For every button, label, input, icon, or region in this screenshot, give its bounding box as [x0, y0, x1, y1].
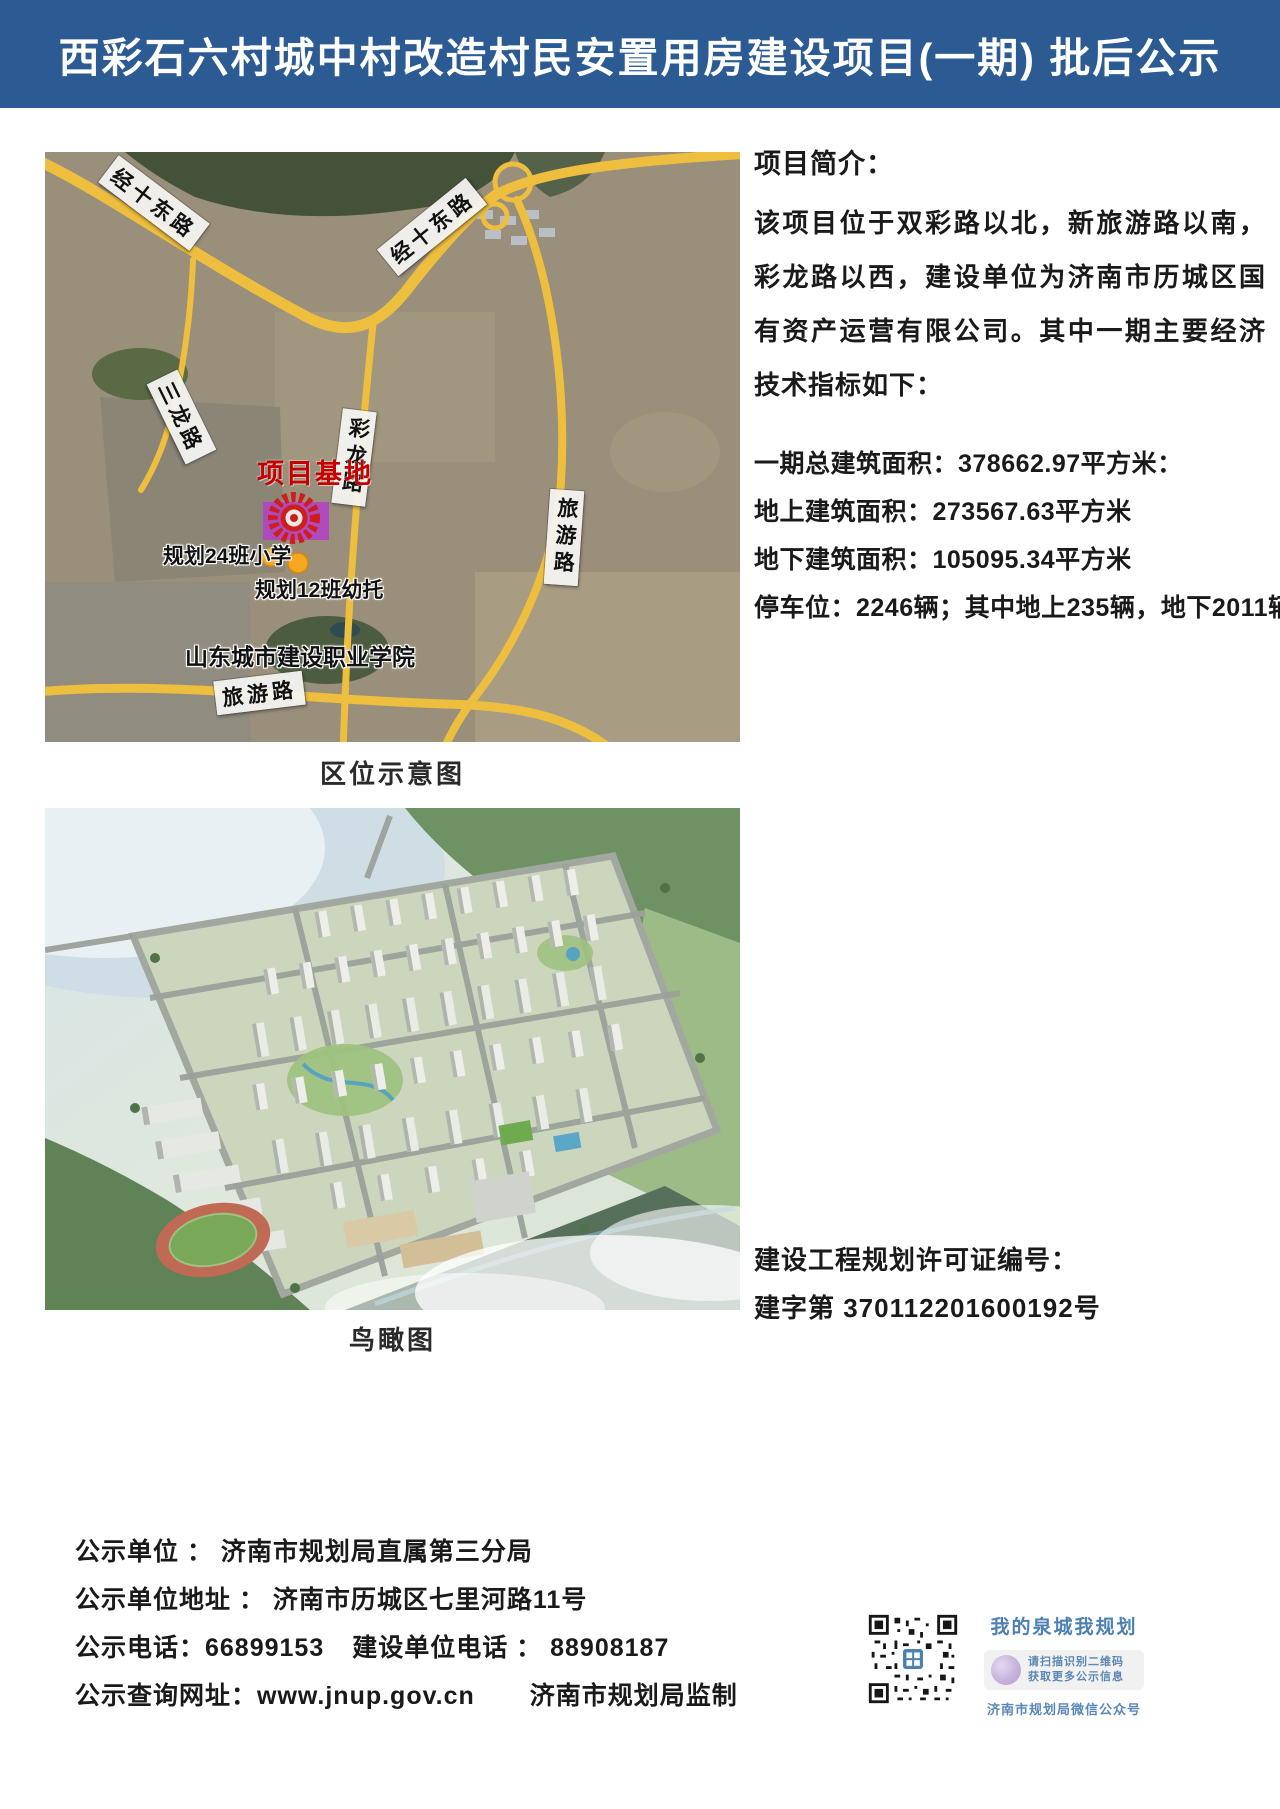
- website-label: 公示查询网址：www.jnup.gov.cn: [75, 1682, 475, 1710]
- birdseye-view: 鸟瞰图: [45, 808, 740, 1368]
- scan-tip-line2: 获取更多公示信息: [1028, 1670, 1124, 1685]
- site-label: 项目基地: [257, 452, 373, 491]
- qr-code: [866, 1612, 960, 1706]
- builder-phone-label: 建设单位电话 ： 88908187: [352, 1634, 669, 1662]
- permit-number-line: 建字第 370112201600192号: [754, 1284, 1101, 1332]
- location-map-caption: 区位示意图: [45, 754, 740, 791]
- scan-tip-box: 请扫描识别二维码 获取更多公示信息: [984, 1650, 1144, 1690]
- notice-page: 西彩石六村城中村改造村民安置用房建设项目(一期) 批后公示: [0, 0, 1280, 1809]
- indicator-above-ground-area: 地上建筑面积：273567.63平方米: [754, 488, 1266, 536]
- location-map: 经十东路 经十东路 三龙路 彩龙路 旅游路 旅游路 项目基地 规划24班小学 规…: [45, 152, 740, 797]
- footer-phone-line: 公示电话：66899153建设单位电话 ： 88908187: [75, 1624, 738, 1672]
- wechat-slogan: 我的泉城我规划: [984, 1612, 1144, 1639]
- intro-paragraph: 该项目位于双彩路以北，新旅游路以南，彩龙路以西，建设单位为济南市历城区国有资产运…: [754, 196, 1266, 412]
- indicator-parking: 停车位：2246辆；其中地上235辆，地下2011辆: [754, 584, 1266, 632]
- supervisor-label: 济南市规划局监制: [530, 1682, 738, 1710]
- indicator-underground-area: 地下建筑面积：105095.34平方米: [754, 536, 1266, 584]
- indicator-list: 一期总建筑面积：378662.97平方米： 地上建筑面积：273567.63平方…: [754, 440, 1266, 632]
- college-label: 山东城市建设职业学院: [185, 638, 415, 672]
- site-marker-icon: [263, 497, 329, 540]
- scan-tip-line1: 请扫描识别二维码: [1028, 1655, 1124, 1670]
- permit-info: 建设工程规划许可证编号： 建字第 370112201600192号: [754, 1236, 1101, 1332]
- phone-label: 公示电话：66899153: [75, 1634, 324, 1662]
- wechat-account: 济南市规划局微信公众号: [984, 1699, 1144, 1718]
- kindergarten-label: 规划12班幼托: [255, 574, 383, 604]
- footer-unit-line: 公示单位 ： 济南市规划局直属第三分局: [75, 1528, 738, 1576]
- footer-info: 公示单位 ： 济南市规划局直属第三分局 公示单位地址 ： 济南市历城区七里河路1…: [75, 1528, 738, 1720]
- school-label: 规划24班小学: [163, 540, 291, 570]
- indicator-total-area: 一期总建筑面积：378662.97平方米：: [754, 440, 1266, 488]
- birdseye-caption: 鸟瞰图: [45, 1320, 740, 1357]
- project-intro: 项目简介： 该项目位于双彩路以北，新旅游路以南，彩龙路以西，建设单位为济南市历城…: [754, 140, 1266, 632]
- footer-address-line: 公示单位地址 ： 济南市历城区七里河路11号: [75, 1576, 738, 1624]
- permit-heading-line: 建设工程规划许可证编号：: [754, 1236, 1101, 1284]
- footer-website-line: 公示查询网址：www.jnup.gov.cn济南市规划局监制: [75, 1672, 738, 1720]
- road-label-lvyou-right: 旅游路: [544, 489, 585, 586]
- wechat-logo-icon: [991, 1655, 1021, 1685]
- birdseye-svg: [45, 808, 740, 1310]
- wechat-panel: 我的泉城我规划 请扫描识别二维码 获取更多公示信息 济南市规划局微信公众号: [866, 1612, 1144, 1718]
- intro-heading: 项目简介：: [754, 140, 1266, 188]
- page-title: 西彩石六村城中村改造村民安置用房建设项目(一期) 批后公示: [59, 24, 1222, 84]
- header-banner: 西彩石六村城中村改造村民安置用房建设项目(一期) 批后公示: [0, 0, 1280, 108]
